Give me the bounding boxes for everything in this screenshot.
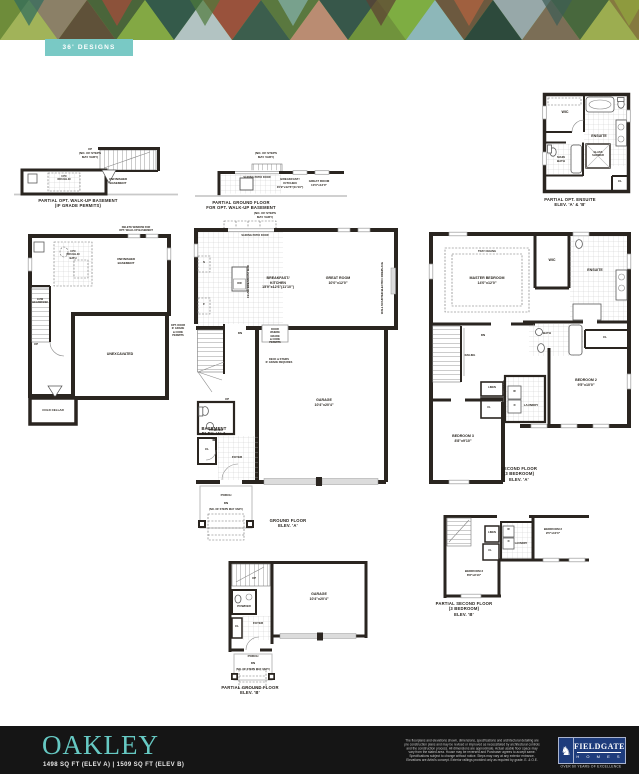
label-cold-cellar: COLD CELLAR bbox=[42, 409, 64, 413]
logo-homes: H O M E S bbox=[576, 754, 622, 759]
logo-text-block: FIELDGATE H O M E S bbox=[574, 738, 625, 763]
label-closet: CL bbox=[603, 336, 607, 340]
label-foyer: FOYER bbox=[253, 622, 263, 626]
label-low-headroom: LOW HEADROOM bbox=[32, 298, 47, 305]
label-washer: W bbox=[513, 390, 515, 393]
label-railing: RAILING bbox=[465, 354, 476, 357]
label-linen: LINEN bbox=[488, 386, 496, 389]
label-closet2: CL bbox=[487, 406, 490, 409]
label-dishwasher: DW bbox=[237, 282, 241, 285]
label-bedroom2: BEDROOM 2 9'5"x10'0" bbox=[575, 378, 597, 387]
logo-divider bbox=[577, 752, 621, 753]
label-laundry: LAUNDRY bbox=[515, 542, 528, 545]
footer-bar: OAKLEY 1498 SQ FT (ELEV A) | 1509 SQ FT … bbox=[0, 726, 639, 774]
label-dryer: D bbox=[508, 540, 510, 543]
label-main-bath: MAIN BATH bbox=[557, 156, 565, 164]
plan-opt-ensuite: WIC ENSUITE MAIN BATH GLASS SHOWER CL PA… bbox=[538, 84, 636, 218]
plan-walkup-basement: UP (NO. OF STEPS MAY VARY) 3 PC ROUGH-IN… bbox=[14, 142, 166, 222]
lion-emblem-icon: ♞ bbox=[559, 738, 574, 763]
label-up: UP bbox=[225, 398, 229, 402]
label-wic: WIC bbox=[562, 110, 569, 115]
label-patio-door: SLIDING PATIO DOOR bbox=[243, 176, 270, 179]
label-opt-door: OPT. DOOR IF GRADE & CODE PERMITS bbox=[171, 324, 185, 337]
plan-second-floor: TRAY CEILING MASTER BEDROOM 14'0"x12'0" … bbox=[423, 226, 637, 488]
plan-second-floor-drawing bbox=[423, 226, 637, 488]
label-linen: LINEN bbox=[488, 531, 496, 534]
label-garage: GARAGE 10'4"x20'4" bbox=[309, 592, 328, 601]
label-up-note: UP (NO. OF STEPS MAY VARY) bbox=[79, 148, 101, 160]
label-unfinished-basement: UNFINISHED BASEMENT bbox=[117, 258, 135, 266]
label-closet: CL bbox=[205, 448, 209, 452]
disclaimer-text: The floorplans and elevations shown, dim… bbox=[403, 739, 541, 762]
label-wic: WIC bbox=[549, 258, 556, 263]
label-dn: DN bbox=[238, 332, 242, 336]
label-steps-note: (NO. OF STEPS MAY VARY) bbox=[236, 668, 270, 671]
designs-ribbon: 36' DESIGNS bbox=[45, 39, 133, 56]
label-shower: GLASS SHOWER bbox=[592, 151, 604, 158]
label-master-bedroom: MASTER BEDROOM 14'0"x12'0" bbox=[470, 276, 505, 285]
label-steps-note: (NO. OF STEPS MAY VARY) bbox=[255, 152, 277, 160]
label-unexcavated: UNEXCAVATED bbox=[107, 352, 134, 357]
caption-second-floor: SECOND FLOOR (3 BEDROOM) ELEV. 'A' bbox=[501, 466, 537, 482]
label-steps-note-top: (NO. OF STEPS MAY VARY) bbox=[254, 212, 276, 220]
logo-brand: FIELDGATE bbox=[574, 742, 625, 751]
plan-partial-second-b: LINEN W D LAUNDRY CL BEDROOM 2 9'5"x10'0… bbox=[437, 512, 589, 640]
label-garage: GARAGE 10'4"x20'4" bbox=[314, 398, 333, 407]
label-dryer: D bbox=[514, 404, 516, 407]
label-foyer: FOYER bbox=[232, 456, 242, 460]
plan-walkup-ground: (NO. OF STEPS MAY VARY) SLIDING PATIO DO… bbox=[195, 140, 347, 212]
label-closet: CL bbox=[618, 180, 622, 184]
label-up: UP bbox=[34, 343, 38, 347]
label-delete-window: DELETE WINDOW FOR OPT. WALK-UP BASEMENT bbox=[119, 226, 153, 233]
label-dn: DN bbox=[481, 334, 485, 338]
label-fireplace: WALL MOUNTED ELECTRIC FIREPLACE bbox=[382, 262, 385, 314]
caption-walkup-ground: PARTIAL GROUND FLOOR FOR OPT. WALK-UP BA… bbox=[206, 200, 276, 211]
label-rough-in-bath: 3 PC ROUGH-IN BATH bbox=[66, 250, 79, 260]
label-powder: POWDER bbox=[209, 429, 223, 433]
label-unfinished-basement: UNFINISHED BASEMENT bbox=[109, 178, 127, 186]
label-sink: S bbox=[203, 261, 205, 265]
fieldgate-logo: ♞ FIELDGATE H O M E S bbox=[558, 737, 626, 764]
label-washer: W bbox=[507, 528, 509, 531]
label-ensuite: ENSUITE bbox=[587, 268, 603, 273]
caption-opt-ensuite: PARTIAL OPT. ENSUITE ELEV. 'A' & 'B' bbox=[544, 197, 596, 208]
label-opt-uppers: OPT. UPPERS bbox=[504, 380, 507, 398]
label-steps-note: (NO. OF STEPS MAY VARY) bbox=[209, 508, 243, 511]
brochure-page: 36' DESIGNS UP (NO. OF STEPS MAY VARY) 3… bbox=[0, 0, 639, 782]
plan-basement: DELETE WINDOW FOR OPT. WALK-UP BASEMENT … bbox=[18, 226, 192, 450]
label-patio-door: SLIDING PATIO DOOR bbox=[241, 234, 268, 237]
label-deck-note: DECK & STAIRS IF GRADE REQUIRES bbox=[266, 358, 293, 365]
label-porch-dn: DN bbox=[224, 502, 228, 506]
designs-ribbon-label: 36' DESIGNS bbox=[62, 44, 115, 51]
label-laundry: LAUNDRY bbox=[524, 404, 539, 408]
label-tray-ceiling: TRAY CEILING bbox=[478, 250, 496, 253]
label-great-room: GREAT ROOM 10'0"x12'0" bbox=[326, 276, 351, 285]
caption-partial-ground-b: PARTIAL GROUND FLOOR ELEV. 'B' bbox=[221, 685, 278, 696]
label-fridge: F bbox=[203, 303, 205, 307]
label-bath: BATH bbox=[543, 332, 551, 336]
label-porch: PORCH bbox=[248, 655, 259, 659]
label-kitchen: BREAKFAST/ KITCHEN 15'9"x12'6"(11'10") bbox=[262, 276, 294, 290]
label-rough-in: 3 PC ROUGH-IN bbox=[57, 175, 70, 182]
label-bedroom3: BEDROOM 3 8'8"x9'10" bbox=[465, 570, 483, 578]
plan-partial-ground-b: UP POWDER FOYER CL GARAGE 10'4"x20'4" PO… bbox=[218, 556, 376, 708]
label-up: UP bbox=[252, 577, 256, 581]
label-porch: PORCH bbox=[221, 494, 232, 498]
plan-ground-floor: (NO. OF STEPS MAY VARY) SLIDING PATIO DO… bbox=[188, 212, 403, 546]
label-powder: POWDER bbox=[237, 605, 251, 609]
label-ensuite: ENSUITE bbox=[591, 134, 607, 139]
label-great-room: GREAT ROOM 10'0"x12'0" bbox=[309, 180, 329, 188]
caption-partial-second-b: PARTIAL SECOND FLOOR (3 BEDROOM) ELEV. '… bbox=[436, 601, 493, 617]
caption-walkup-basement: PARTIAL OPT. WALK-UP BASEMENT (IF GRADE … bbox=[38, 198, 117, 209]
label-breakfast-bar: FLUSH BREAKFAST BAR bbox=[248, 265, 251, 298]
label-door-grade: DOOR WHERE GRADE & CODE PERMITS bbox=[269, 328, 281, 345]
plan-partial-second-b-drawing bbox=[437, 512, 589, 640]
model-name: OAKLEY bbox=[42, 730, 159, 761]
banner-triangles-large bbox=[0, 0, 639, 40]
plan-basement-drawing bbox=[18, 226, 192, 450]
label-closet: CL bbox=[488, 549, 491, 552]
label-kitchen: BREAKFAST/ KITCHEN 15'9"x12'6"(11'10") bbox=[277, 178, 304, 190]
label-closet: CL bbox=[235, 625, 239, 629]
label-bedroom3: BEDROOM 3 8'8"x9'10" bbox=[452, 434, 474, 443]
sqft-line: 1498 SQ FT (ELEV A) | 1509 SQ FT (ELEV B… bbox=[43, 762, 184, 768]
caption-ground-floor: GROUND FLOOR ELEV. 'A' bbox=[270, 518, 307, 529]
label-bedroom2: BEDROOM 2 9'5"x10'0" bbox=[544, 528, 562, 536]
logo-tagline: OVER 60 YEARS OF EXCELLENCE bbox=[558, 765, 624, 769]
triangle-banner bbox=[0, 0, 639, 40]
label-dn: DN bbox=[251, 662, 255, 666]
